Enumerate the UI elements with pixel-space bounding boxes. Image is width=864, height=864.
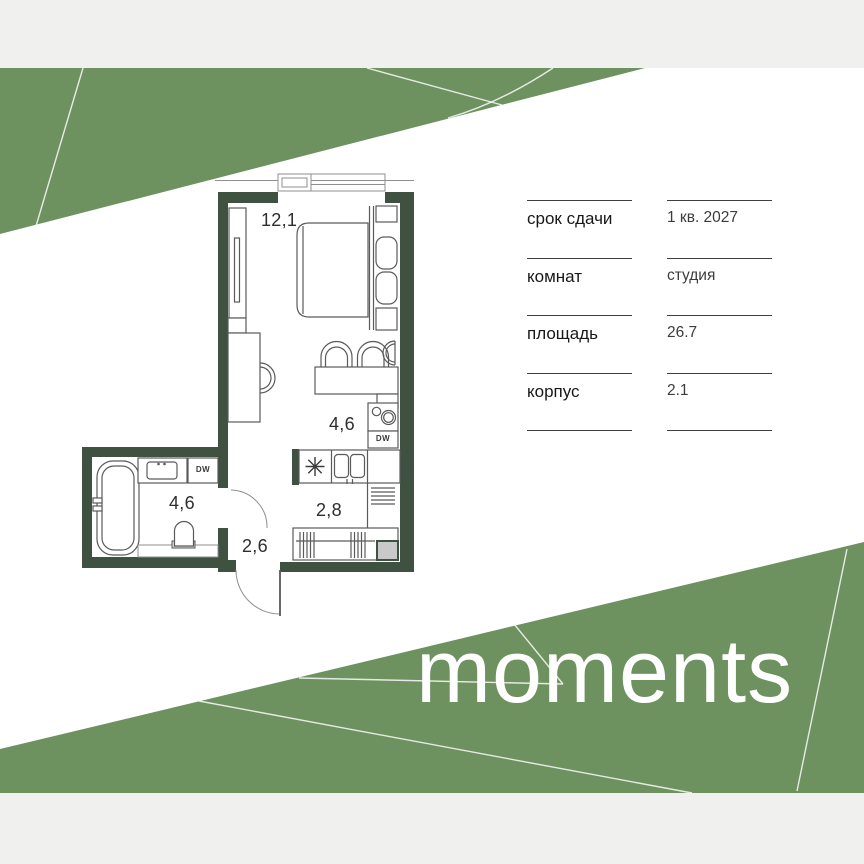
entry-door-arc [236, 570, 280, 614]
vent-asterisk-icon [306, 457, 325, 476]
bed [297, 206, 397, 330]
bottom-gray-strip [0, 793, 864, 864]
hall-closets [293, 483, 398, 560]
kitchen-area-label: 4,6 [329, 414, 355, 435]
spec-value: 26.7 [667, 315, 772, 373]
spec-row-building: корпус 2.1 [527, 373, 772, 431]
listing-poster: 12,1 4,6 4,6 2,8 2,6 DW DW срок сдачи 1 … [0, 0, 864, 864]
spec-label: комнат [527, 258, 632, 316]
bathtub [97, 461, 139, 555]
specs-table: срок сдачи 1 кв. 2027 комнат студия площ… [527, 200, 772, 430]
wardrobe [228, 208, 275, 422]
bathroom-door-arc [231, 490, 267, 528]
poster-graphics [0, 0, 864, 864]
living-area-label: 12,1 [261, 210, 297, 231]
shaft [377, 541, 398, 560]
spec-row-area: площадь 26.7 [527, 315, 772, 373]
toilet [175, 522, 194, 547]
spec-label: площадь [527, 315, 632, 373]
brand-logo: moments [416, 627, 793, 717]
spec-row-rooms: комнат студия [527, 258, 772, 316]
spec-value: студия [667, 258, 772, 316]
spec-label: корпус [527, 373, 632, 431]
spec-row-deadline: срок сдачи 1 кв. 2027 [527, 200, 772, 258]
top-gray-strip [0, 0, 864, 68]
washer-label: DW [188, 465, 218, 474]
spec-label: срок сдачи [527, 200, 632, 258]
spec-value: 1 кв. 2027 [667, 200, 772, 258]
spec-value: 2.1 [667, 373, 772, 431]
tap [93, 498, 102, 503]
hallway-area-label: 2,8 [316, 500, 342, 521]
entry-area-label: 2,6 [242, 536, 268, 557]
bathroom-area-label: 4,6 [169, 493, 195, 514]
facade-windows [215, 174, 414, 191]
dishwasher-label: DW [368, 434, 398, 443]
tap [93, 506, 102, 511]
